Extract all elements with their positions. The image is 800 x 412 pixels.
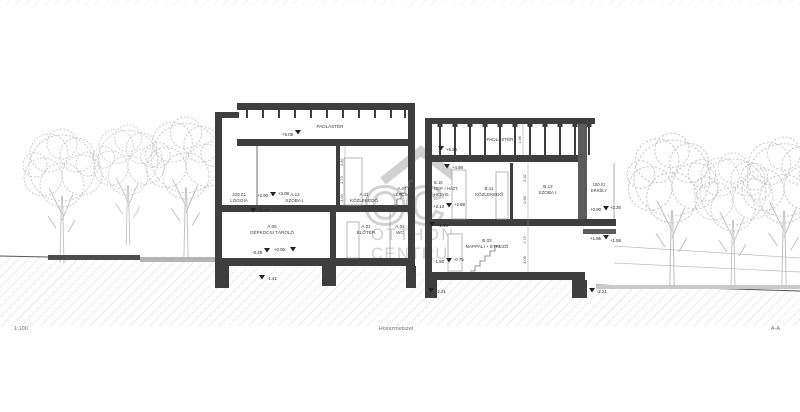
room-id-a07: A.07 [398, 186, 407, 191]
drawing-sheet: OC OTTHON CENTRUM [0, 0, 800, 412]
dim-text: 3.05 [523, 256, 527, 263]
left-ground-slab [215, 258, 415, 266]
left-ceiling-slab [237, 139, 415, 146]
room-name-a07: LÉPCSŐ [394, 192, 412, 197]
room-name-b12: SZOBA I. [538, 190, 557, 195]
sheet-top-texture [0, 0, 800, 5]
room-id-b15: B.15 [434, 180, 443, 185]
room-id-a11: A.11 [359, 192, 369, 197]
right-floor-slab [425, 219, 583, 226]
level-text: +4.98 [452, 165, 463, 170]
room-name-a04: WC [396, 230, 404, 235]
room-name-b15-1: GÉP. / HÁZT. [434, 186, 459, 191]
attic-label-left: PADLÁSTÉR [317, 123, 345, 129]
dim-text: 3.04 [340, 194, 344, 201]
scale-label: 1:100 [14, 326, 28, 332]
room-id-a12: A.12 [290, 192, 300, 197]
level-text: +0.90 [590, 207, 601, 212]
section-drawing: OC OTTHON CENTRUM [0, 0, 800, 412]
door-ground-left [347, 222, 359, 258]
level-text: +1.95 [437, 223, 448, 228]
level-text: +3.08 [278, 191, 289, 196]
dim-text: 2.87 [340, 158, 344, 165]
level-text: -1.41 [267, 276, 277, 281]
room-name-a12: SZOBA I. [285, 198, 304, 203]
level-text: +2.26 [610, 205, 621, 210]
room-name-erkely: ERKÉLY [591, 188, 607, 193]
room-id-erkely: 100.01 [593, 182, 606, 187]
level-text: +1.58 [610, 238, 621, 243]
foundation [322, 266, 336, 286]
level-text: -0.75 [454, 257, 464, 262]
dim-text: 2.02 [523, 174, 527, 181]
trees-left [23, 117, 228, 263]
right-ground-slab [425, 272, 585, 280]
room-name-b03: NAPPALI + ÉTKEZŐ [466, 243, 509, 249]
room-name-a11: KÖZLEKEDŐ [350, 197, 379, 203]
level-text: +1.85 [590, 236, 601, 241]
trees-right [627, 133, 800, 287]
dim-text: 1.98 [518, 136, 522, 143]
room-id-b11: B.11 [484, 186, 494, 191]
room-id-a01: A.01 [361, 224, 371, 229]
room-id-b03: B.03 [482, 238, 492, 243]
level-text: -2.21 [436, 289, 446, 294]
dim-text: 1.70 [523, 236, 527, 243]
left-roof-slab [237, 103, 415, 110]
room-name-a06: GÉPKOCSI TÁROLÓ [250, 229, 295, 235]
room-id-a06: A.06 [267, 224, 277, 229]
right-ceiling-slab [432, 155, 583, 162]
dim-text: 2.96 [523, 196, 527, 203]
level-text: +2.13 [433, 204, 444, 209]
door-upper-right-1 [452, 170, 466, 219]
room-name-loggia: LOGGIA [230, 198, 249, 203]
left-floor-slab [215, 205, 415, 212]
level-text: +2.98 [454, 202, 465, 207]
level-text: +5.08 [282, 132, 293, 137]
room-name-b15-2: HELYIS. [434, 192, 450, 197]
fence-line-2 [614, 263, 800, 272]
right-roof-slab [425, 118, 595, 124]
attic-label-right: PADLÁSTÉR [487, 136, 515, 142]
level-text: -0.29 [252, 250, 262, 255]
level-text: +0.06 [274, 247, 285, 252]
level-text: -2.21 [597, 289, 607, 294]
level-text: +5.34 [446, 147, 457, 152]
room-id-b12: B.12 [543, 184, 553, 189]
foundation [215, 258, 229, 288]
room-name-a01: ELŐTÉR [357, 229, 376, 235]
foundation [572, 280, 587, 298]
foundation [406, 266, 416, 288]
level-text: +2.90 [257, 193, 268, 198]
room-id-a04: A.04 [395, 224, 405, 229]
balcony-slab [583, 219, 616, 226]
pavement-strip [48, 255, 140, 260]
dim-text: 2.70 [340, 176, 344, 183]
door-ground-right [448, 234, 462, 271]
room-name-b11: KÖZLEKEDŐ [475, 191, 504, 197]
section-reference: A-A [771, 326, 781, 332]
level-text: +2.70 [258, 208, 269, 213]
level-text: -1.50 [434, 259, 444, 264]
fence-line-1 [614, 246, 800, 258]
drawing-title: Hosszmetszet [379, 326, 414, 332]
room-id-loggia: 100.01 [232, 192, 246, 197]
